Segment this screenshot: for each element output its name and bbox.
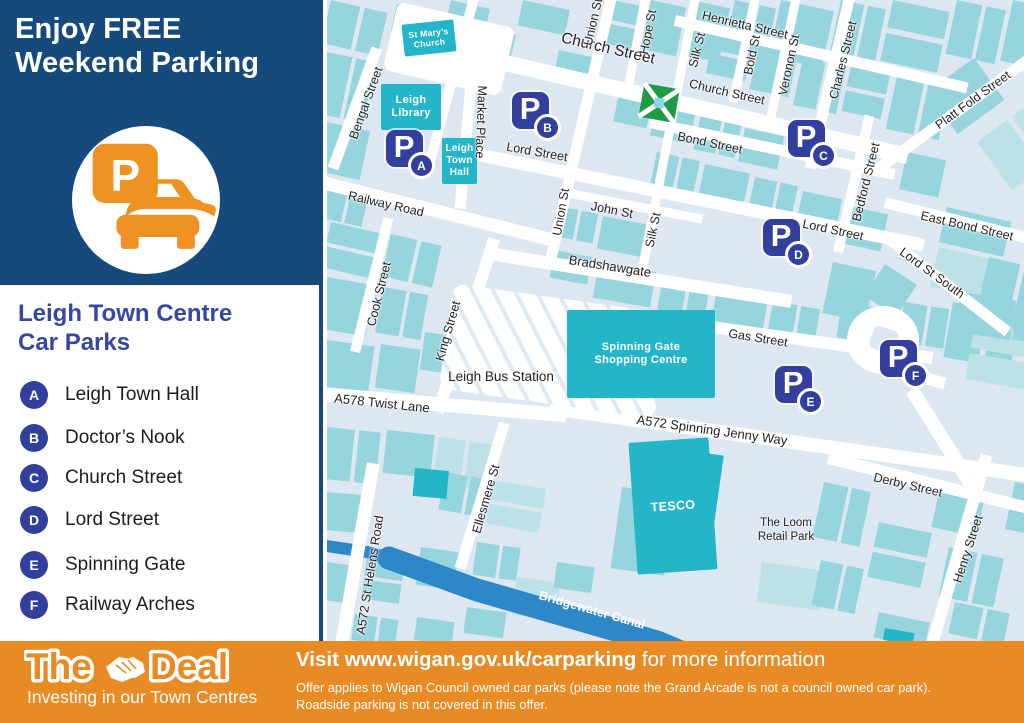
sidebar-header: Enjoy FREE Weekend Parking P — [0, 0, 323, 285]
parking-marker-letter: F — [902, 362, 929, 389]
legend-item-church-street: CChurch Street — [20, 464, 182, 492]
legend-label: Lord Street — [65, 509, 159, 531]
landmark-leigh-town-hall: LeighTownHall — [442, 138, 477, 184]
legend-item-leigh-town-hall: ALeigh Town Hall — [20, 381, 199, 409]
footer: The Deal Investing in our Town Centres V… — [0, 641, 1024, 723]
legend-label: Railway Arches — [65, 594, 195, 616]
place-label-the-loom-retail-park: The LoomRetail Park — [758, 516, 814, 544]
town-centre-map: St Mary’sChurchLeighLibraryLeighTownHall… — [327, 0, 1024, 641]
poster-title: Enjoy FREE Weekend Parking — [15, 13, 259, 81]
parking-marker-letter: E — [797, 388, 824, 415]
landmark-label: Leigh — [396, 94, 427, 107]
footer-disclaimer-2: Roadside parking is not covered in this … — [296, 697, 548, 714]
street-label-market-place: Market Place — [473, 85, 490, 158]
legend-title: Leigh Town Centre Car Parks — [18, 299, 232, 358]
poster-title-line1: Enjoy FREE — [15, 13, 259, 47]
landmark-label: Spinning Gate — [602, 341, 680, 354]
legend-label: Church Street — [65, 467, 182, 489]
parking-marker-f: PF — [880, 340, 917, 377]
legend-badge-d: D — [20, 506, 48, 534]
landmark-spinning-gate-shopping-centre: Spinning GateShopping Centre — [567, 310, 715, 398]
legend-title-line2: Car Parks — [18, 328, 232, 357]
park-icon — [636, 82, 682, 126]
parking-icon-letter: P — [110, 152, 140, 201]
parking-marker-a: PA — [386, 130, 423, 167]
legend-label: Spinning Gate — [65, 554, 185, 576]
landmark-leigh-library: LeighLibrary — [381, 84, 441, 130]
parking-marker-letter: D — [785, 241, 812, 268]
sidebar: Enjoy FREE Weekend Parking P Leigh Town … — [0, 0, 323, 641]
parking-marker-e: PE — [775, 366, 812, 403]
footer-visit-rest: for more information — [636, 648, 825, 671]
place-label-line: Retail Park — [758, 530, 814, 544]
parking-car-icon: P — [72, 126, 220, 274]
legend-badge-a: A — [20, 381, 48, 409]
parking-marker-b: PB — [512, 92, 549, 129]
parking-marker-letter: B — [534, 114, 561, 141]
the-deal-logo: The Deal — [24, 645, 284, 689]
landmark-label: Hall — [450, 167, 470, 179]
footer-url: Visit www.wigan.gov.uk/carparking — [296, 648, 636, 671]
parking-marker-d: PD — [763, 219, 800, 256]
legend-badge-b: B — [20, 424, 48, 452]
footer-visit-line: Visit www.wigan.gov.uk/carparking for mo… — [296, 648, 825, 672]
poster-title-line2: Weekend Parking — [15, 47, 259, 81]
handshake-icon — [106, 657, 145, 682]
landmark-label: Shopping Centre — [594, 354, 687, 367]
landmark-label: Town — [446, 155, 473, 167]
landmark-label: TESCO — [650, 497, 695, 515]
parking-marker-letter: C — [810, 142, 837, 169]
footer-disclaimer-1: Offer applies to Wigan Council owned car… — [296, 680, 931, 697]
parking-car-icon-svg: P — [72, 126, 220, 274]
car-park-legend: Leigh Town Centre Car Parks ALeigh Town … — [0, 285, 323, 641]
legend-badge-e: E — [20, 551, 48, 579]
legend-item-railway-arches: FRailway Arches — [20, 591, 195, 619]
logo-word-deal: Deal — [150, 646, 228, 687]
landmark-label: Church — [413, 36, 445, 49]
place-label-leigh-bus-station: Leigh Bus Station — [448, 369, 554, 385]
legend-label: Leigh Town Hall — [65, 384, 199, 406]
legend-badge-c: C — [20, 464, 48, 492]
place-label-line: Leigh Bus Station — [448, 369, 554, 385]
landmark-tesco: TESCO — [628, 437, 717, 574]
legend-item-lord-street: DLord Street — [20, 506, 159, 534]
legend-label: Doctor’s Nook — [65, 427, 185, 449]
logo-word-the: The — [26, 646, 92, 687]
legend-item-doctor-s-nook: BDoctor’s Nook — [20, 424, 185, 452]
landmark-label: Library — [391, 107, 430, 120]
landmark-st-mary-s-church: St Mary’sChurch — [401, 19, 456, 56]
landmark-label: Leigh — [445, 143, 473, 155]
place-label-line: The Loom — [758, 516, 814, 530]
parking-marker-c: PC — [788, 120, 825, 157]
legend-item-spinning-gate: ESpinning Gate — [20, 551, 185, 579]
footer-tagline: Investing in our Town Centres — [27, 687, 257, 708]
parking-marker-letter: A — [408, 152, 435, 179]
legend-badge-f: F — [20, 591, 48, 619]
legend-title-line1: Leigh Town Centre — [18, 299, 232, 328]
